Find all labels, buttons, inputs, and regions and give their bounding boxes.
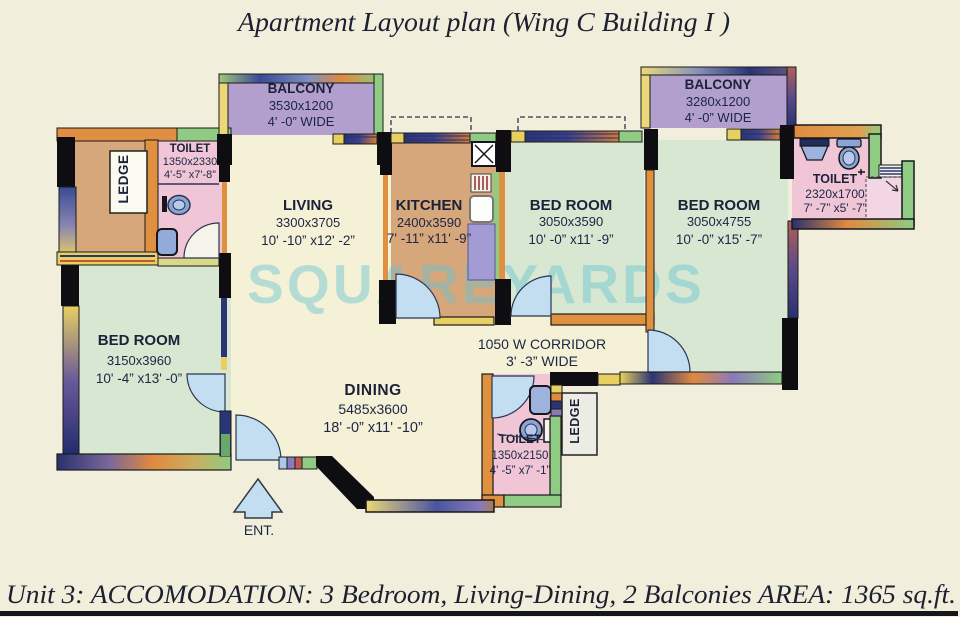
svg-text:KITCHEN: KITCHEN: [396, 197, 463, 214]
svg-text:BALCONY: BALCONY: [268, 81, 335, 96]
svg-text:10' -10” x12' -2”: 10' -10” x12' -2”: [261, 233, 355, 248]
svg-text:10' -4” x13' -0”: 10' -4” x13' -0”: [96, 371, 182, 386]
svg-text:BED ROOM: BED ROOM: [98, 332, 181, 349]
svg-text:7' -7” x5' -7”: 7' -7” x5' -7”: [803, 201, 866, 215]
svg-text:4' -0” WIDE: 4' -0” WIDE: [268, 114, 335, 129]
svg-text:ENT.: ENT.: [244, 522, 274, 538]
svg-text:3300x3705: 3300x3705: [276, 215, 340, 230]
svg-text:4'-5” x7'-8”: 4'-5” x7'-8”: [164, 169, 216, 181]
svg-text:1050 W CORRIDOR: 1050 W CORRIDOR: [478, 336, 606, 352]
svg-text:BED ROOM: BED ROOM: [530, 197, 613, 214]
svg-text:3050x4755: 3050x4755: [687, 214, 751, 229]
svg-text:2400x3590: 2400x3590: [397, 215, 461, 230]
svg-text:TOILET: TOILET: [170, 143, 211, 155]
svg-text:3' -3” WIDE: 3' -3” WIDE: [506, 353, 578, 369]
svg-text:7' -11” x11' -9”: 7' -11” x11' -9”: [387, 231, 471, 246]
svg-text:TOILET: TOILET: [813, 172, 858, 186]
svg-text:BED ROOM: BED ROOM: [678, 197, 761, 214]
svg-text:DINING: DINING: [344, 382, 401, 399]
svg-text:Unit 3: ACCOMODATION: 3 Bedroo: Unit 3: ACCOMODATION: 3 Bedroom, Living-…: [6, 580, 956, 609]
svg-text:3150x3960: 3150x3960: [107, 353, 171, 368]
svg-text:18' -0” x11' -10”: 18' -0” x11' -10”: [323, 420, 423, 436]
svg-text:4' -0” WIDE: 4' -0” WIDE: [685, 110, 752, 125]
svg-text:3050x3590: 3050x3590: [539, 214, 603, 229]
svg-text:4' -5” x7' -1”: 4' -5” x7' -1”: [490, 465, 551, 477]
svg-text:LEDGE: LEDGE: [568, 398, 582, 444]
svg-text:10' -0” x15' -7”: 10' -0” x15' -7”: [676, 232, 762, 247]
svg-text:5485x3600: 5485x3600: [338, 401, 408, 417]
svg-text:3530x1200: 3530x1200: [269, 98, 333, 113]
svg-text:2320x1700: 2320x1700: [805, 187, 865, 201]
svg-text:LEDGE: LEDGE: [116, 154, 131, 203]
svg-text:10' -0” x11' -9”: 10' -0” x11' -9”: [528, 232, 613, 247]
svg-text:1350x2330: 1350x2330: [163, 156, 217, 168]
svg-text:1350x2150: 1350x2150: [492, 450, 549, 462]
svg-text:BALCONY: BALCONY: [685, 77, 752, 92]
svg-text:LIVING: LIVING: [283, 197, 333, 214]
svg-text:Apartment Layout plan (Wing C: Apartment Layout plan (Wing C Building I…: [236, 7, 730, 37]
svg-text:3280x1200: 3280x1200: [686, 94, 750, 109]
